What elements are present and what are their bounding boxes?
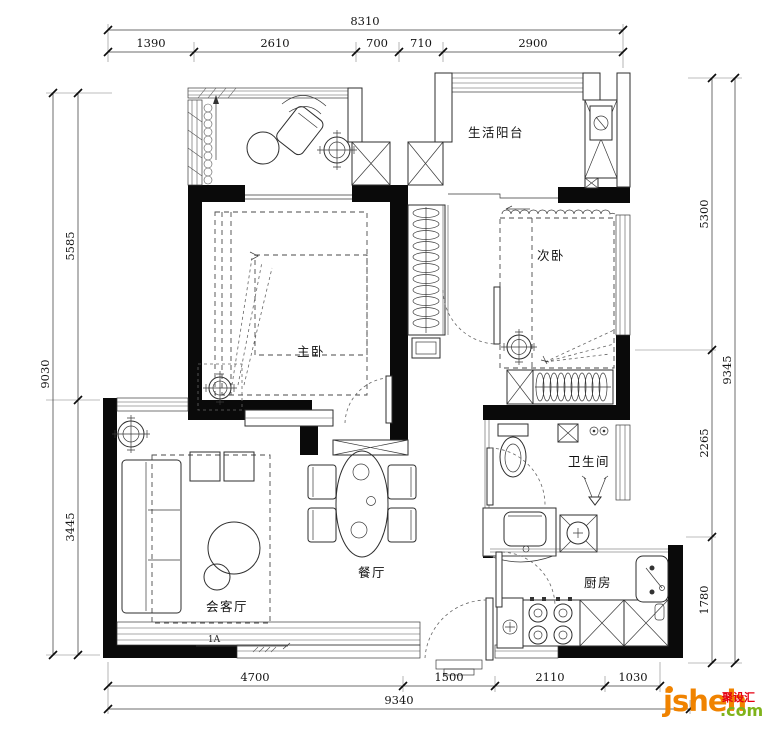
label-master-bedroom: 主卧 [297,344,325,359]
dim-right-seg: 5300 [697,199,711,228]
floorplan-page: 生活阳台 次卧 主卧 卫生间 会客厅 餐厅 厨房 1A 8310 1390 26… [0,0,770,730]
floorplan-drawing: 生活阳台 次卧 主卧 卫生间 会客厅 餐厅 厨房 1A 8310 1390 26… [0,0,770,730]
dim-right-seg: 1780 [697,585,711,614]
dim-top-seg: 2900 [518,36,547,50]
dim-top-seg: 710 [410,36,432,50]
kitchen-sink [636,556,668,602]
dim-top-seg: 700 [366,36,388,50]
label-life-balcony: 生活阳台 [468,125,524,140]
lamp-icon [112,415,150,453]
wardrobe [245,205,448,426]
dim-right-seg: 2265 [697,428,711,457]
label-bathroom: 卫生间 [568,454,610,469]
master-bed [215,212,367,395]
dim-left-seg: 5585 [63,231,77,260]
dim-left-total: 9030 [38,359,52,388]
dim-bottom-total: 9340 [384,693,413,707]
balcony-furniture [204,95,326,184]
entry-door-leaf [486,598,493,660]
ceiling-lamp-icons [112,130,537,453]
round-table [247,132,279,164]
dim-bottom-seg: 1500 [434,670,463,684]
watermark-logo: jsheh 聚设汇 .com [660,686,770,730]
chair [308,508,336,542]
bathroom-fixtures [483,420,608,562]
label-living-room: 会客厅 [206,599,248,614]
dim-bottom-seg: 1030 [618,670,647,684]
door-leaf [494,287,500,344]
door-leaf [386,376,392,423]
rug [152,455,270,623]
toilet [498,424,528,436]
watermark-tld: .com [720,701,763,720]
dim-top-seg: 2610 [260,36,289,50]
sofa [122,460,181,613]
label-second-bedroom: 次卧 [537,248,565,263]
door-leaf [487,448,493,505]
dining-table [336,451,388,557]
dim-right-total: 9345 [720,355,734,384]
chair [308,465,336,499]
label-kitchen: 厨房 [584,575,612,590]
entry-marker: 1A [208,635,221,645]
dim-bottom-seg: 4700 [240,670,269,684]
door-leaf [496,552,502,607]
dim-top-total: 8310 [350,14,379,28]
watermark-dot-icon [666,686,673,693]
side-table [190,452,220,481]
chair [388,508,416,542]
shower-icon [582,476,608,497]
lounge-chair [274,104,325,157]
second-bedroom-furniture [500,206,615,404]
dining-furniture [308,451,416,557]
dim-left-seg: 3445 [63,512,77,541]
dim-bottom-seg: 2110 [535,670,564,684]
coffee-table [208,522,260,574]
side-table [224,452,254,481]
dim-top-seg: 1390 [136,36,165,50]
kitchen-fixtures [483,549,668,648]
label-dining-room: 餐厅 [358,565,386,580]
chair [388,465,416,499]
